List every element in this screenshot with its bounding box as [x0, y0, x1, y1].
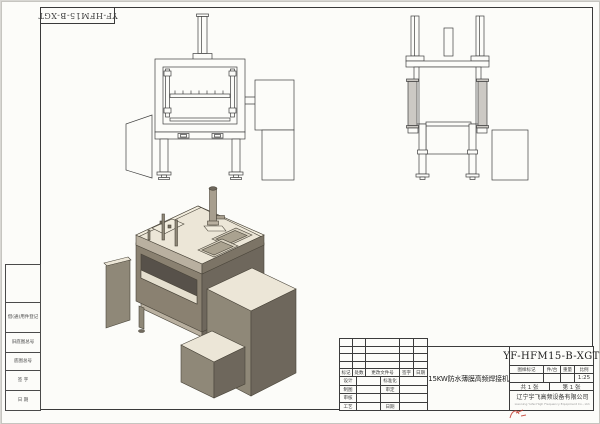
- cabinet-side: [492, 130, 528, 180]
- binding-field-date: 日 期: [5, 390, 41, 411]
- drawing-number-cell: YF-HFM15-B-XGT: [509, 346, 594, 366]
- title-block: 标记 处数 更改文件号 签字 日期 设计 标准化 制图 审定 审核 工艺 日期 …: [339, 338, 594, 411]
- generator-cabinet-front: [255, 80, 294, 130]
- sign-label-process: 工艺: [339, 402, 357, 411]
- scanned-drawing-page: { "sheet": { "corner_label": "YF-HFM15-B…: [0, 0, 600, 424]
- company-name: 辽宁宇飞高频设备有限公司: [517, 395, 589, 401]
- side-view: [400, 12, 535, 184]
- machine-base-front: [155, 132, 245, 180]
- red-stamp-mark: [507, 406, 529, 422]
- binding-empty-cell: [5, 264, 41, 303]
- duct-lines-front: [245, 97, 255, 104]
- corner-drawing-number: YF-HFM15-B-XGT: [38, 11, 118, 20]
- drawing-sheet: YF-HFM15-B-XGT 借(通)用件登记 旧底图总号 底图总号 签 字 日…: [1, 1, 600, 424]
- product-title-cell: 15KW防水薄膜高频焊接机: [427, 346, 510, 411]
- left-panel-iso: [104, 257, 131, 328]
- revision-grid-line: [340, 346, 427, 347]
- isometric-view: [102, 184, 332, 402]
- binding-field-signature: 签 字: [5, 370, 41, 391]
- side-door-panel-front: [126, 115, 152, 178]
- binding-field-master-no: 底图总号: [5, 352, 41, 371]
- table-and-legs-side: [408, 122, 487, 180]
- revision-grid-line: [340, 361, 427, 362]
- binding-field-borrowed-parts: 借(通)用件登记: [5, 302, 41, 333]
- control-cabinet-front: [262, 130, 294, 180]
- columns-side: [411, 16, 484, 56]
- drawing-number: YF-HFM15-B-XGT: [503, 351, 599, 362]
- binding-field-old-master-no: 旧底图总号: [5, 332, 41, 353]
- product-title: 15KW防水薄膜高频焊接机: [428, 374, 509, 384]
- revision-grid-line: [340, 353, 427, 354]
- press-cylinder-front: [193, 14, 212, 64]
- front-view: [112, 12, 297, 184]
- top-plate-side: [406, 56, 489, 67]
- sign-label-date: 日期: [380, 402, 400, 411]
- sign-blank: [356, 402, 381, 411]
- corner-drawing-number-box: YF-HFM15-B-XGT: [40, 7, 115, 24]
- binding-margin-fields: 借(通)用件登记 旧底图总号 底图总号 签 字 日 期: [5, 264, 41, 411]
- sign-blank: [399, 402, 428, 411]
- machine-body-side: [414, 67, 481, 124]
